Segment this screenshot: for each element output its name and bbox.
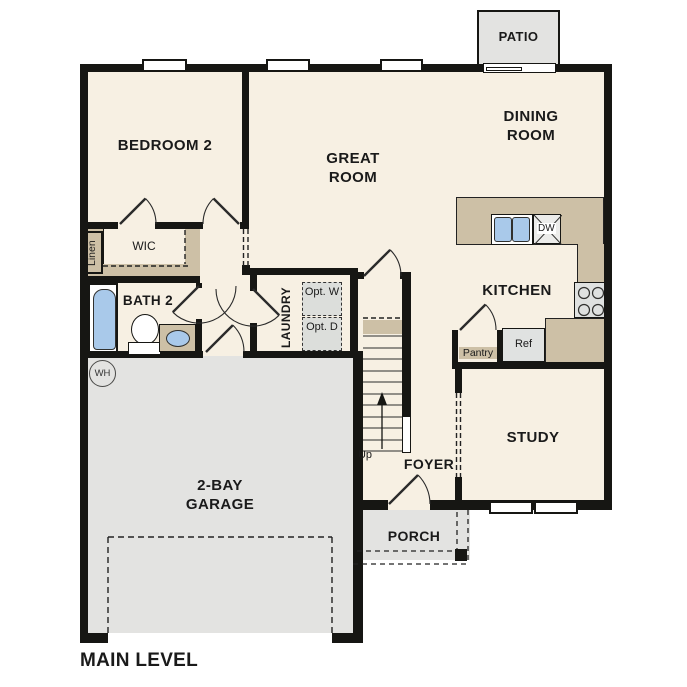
room-label-pantry: Pantry — [459, 347, 497, 359]
room-label-kitchen: KITCHEN — [447, 282, 587, 301]
floor-plan: DW Ref WH Opt. W Opt. D — [0, 0, 687, 687]
door-bedroom2-wic — [120, 199, 156, 225]
door-laundry — [216, 289, 279, 326]
room-label-great-room: GREAT ROOM — [308, 150, 398, 188]
room-label-study: STUDY — [473, 429, 593, 448]
room-label-laundry: LAUNDRY — [279, 281, 294, 353]
plan-title: MAIN LEVEL — [80, 649, 280, 673]
room-label-patio: PATIO — [477, 29, 560, 45]
doors-and-dashes-overlay — [0, 0, 687, 687]
door-garage-entry — [206, 325, 244, 352]
room-label-wic: WIC — [118, 239, 170, 253]
room-label-bedroom2: BEDROOM 2 — [95, 137, 235, 156]
porch-post — [455, 549, 467, 561]
room-label-porch: PORCH — [374, 528, 454, 546]
door-front-entry — [389, 475, 430, 504]
room-label-linen: Linen — [86, 234, 98, 272]
room-label-garage: 2-BAY GARAGE — [175, 477, 265, 515]
room-label-bath2: BATH 2 — [112, 293, 184, 310]
room-label-dining-room: DINING ROOM — [481, 108, 581, 146]
door-pantry — [460, 305, 496, 331]
garage-door-dashes — [108, 537, 332, 633]
door-stairs-greatroom — [364, 250, 401, 276]
room-label-foyer: FOYER — [392, 456, 466, 474]
door-bedroom2-hall — [203, 199, 239, 225]
stairs-up-label: Up — [352, 449, 378, 461]
